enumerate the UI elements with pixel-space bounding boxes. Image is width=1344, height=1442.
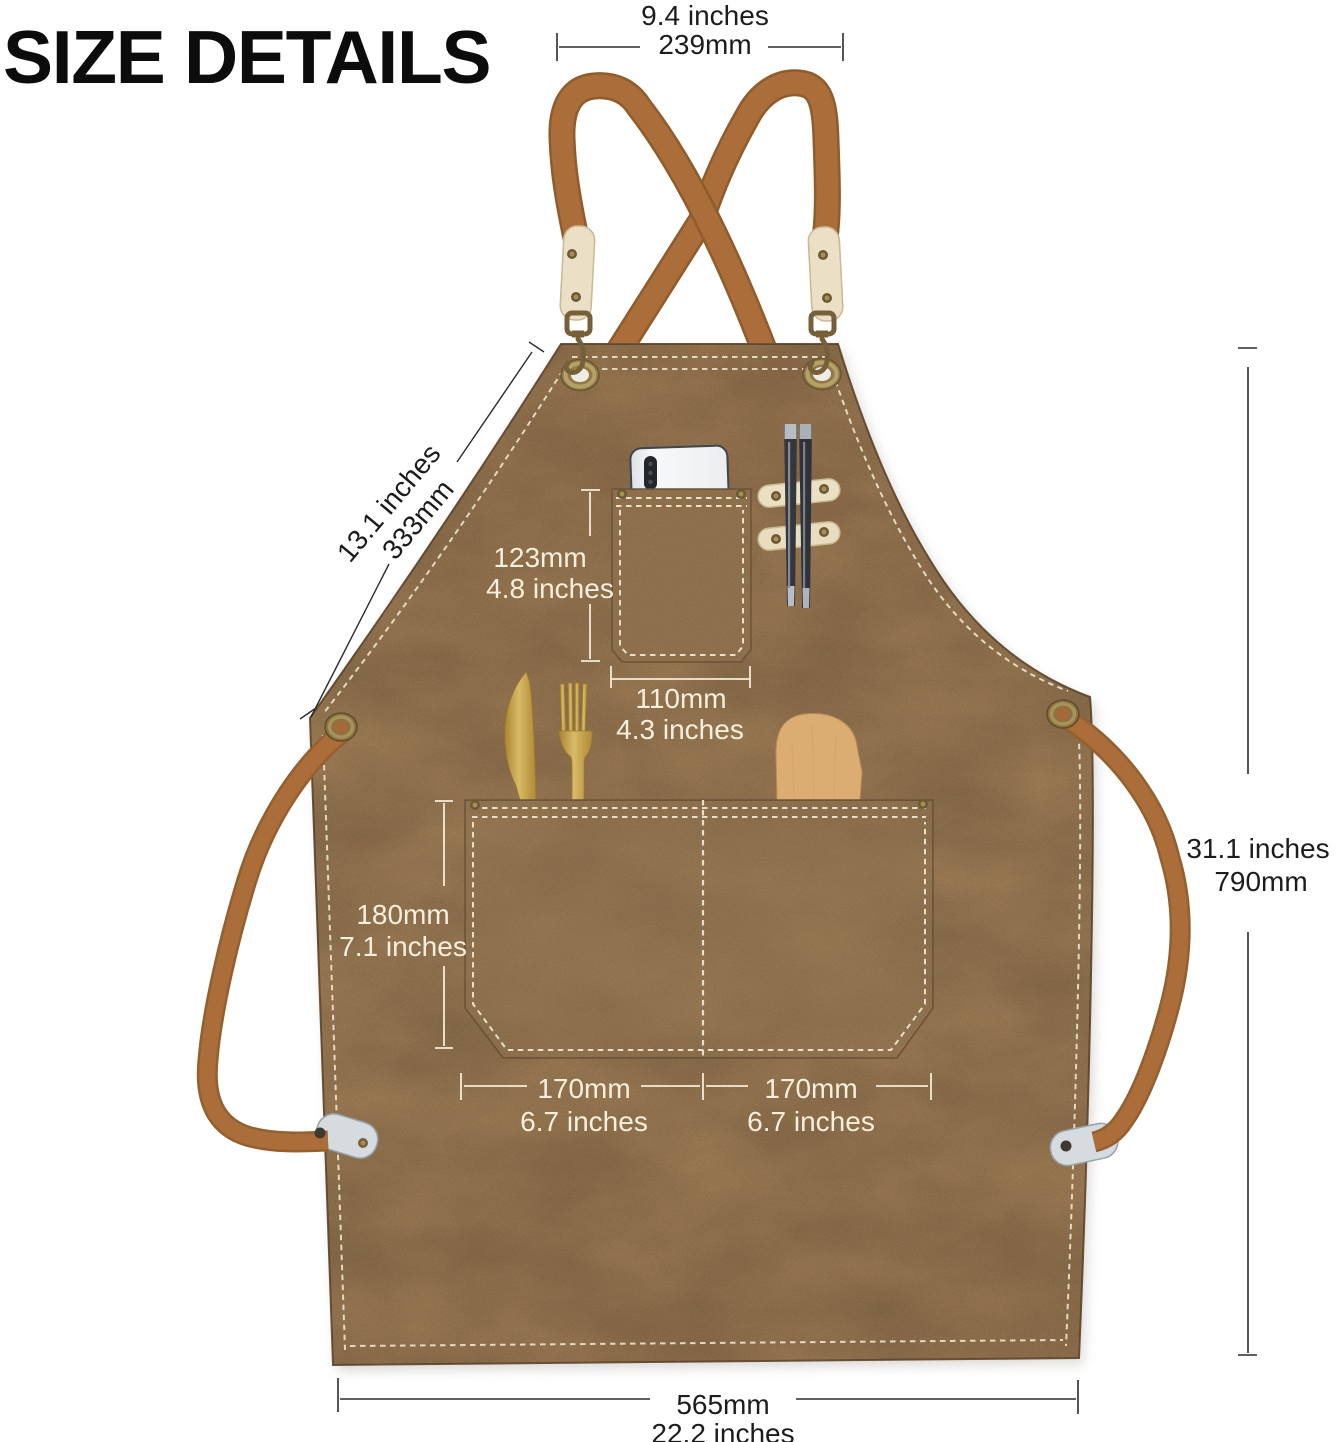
svg-text:110mm: 110mm: [635, 683, 726, 714]
svg-text:SIZE DETAILS: SIZE DETAILS: [3, 15, 490, 99]
svg-text:6.7 inches: 6.7 inches: [747, 1106, 875, 1137]
svg-text:7.1 inches: 7.1 inches: [339, 931, 467, 962]
svg-text:22.2 inches: 22.2 inches: [651, 1418, 794, 1442]
svg-text:170mm: 170mm: [537, 1073, 630, 1104]
svg-text:4.8 inches: 4.8 inches: [486, 573, 614, 604]
svg-text:9.4 inches: 9.4 inches: [641, 0, 769, 31]
svg-text:239mm: 239mm: [658, 29, 751, 60]
svg-text:31.1 inches: 31.1 inches: [1186, 833, 1329, 864]
svg-text:180mm: 180mm: [356, 899, 449, 930]
svg-text:565mm: 565mm: [676, 1389, 769, 1420]
svg-text:123mm: 123mm: [493, 542, 586, 573]
svg-text:4.3 inches: 4.3 inches: [616, 714, 744, 745]
svg-text:170mm: 170mm: [764, 1073, 857, 1104]
svg-text:790mm: 790mm: [1214, 866, 1307, 897]
svg-text:6.7 inches: 6.7 inches: [520, 1106, 648, 1137]
